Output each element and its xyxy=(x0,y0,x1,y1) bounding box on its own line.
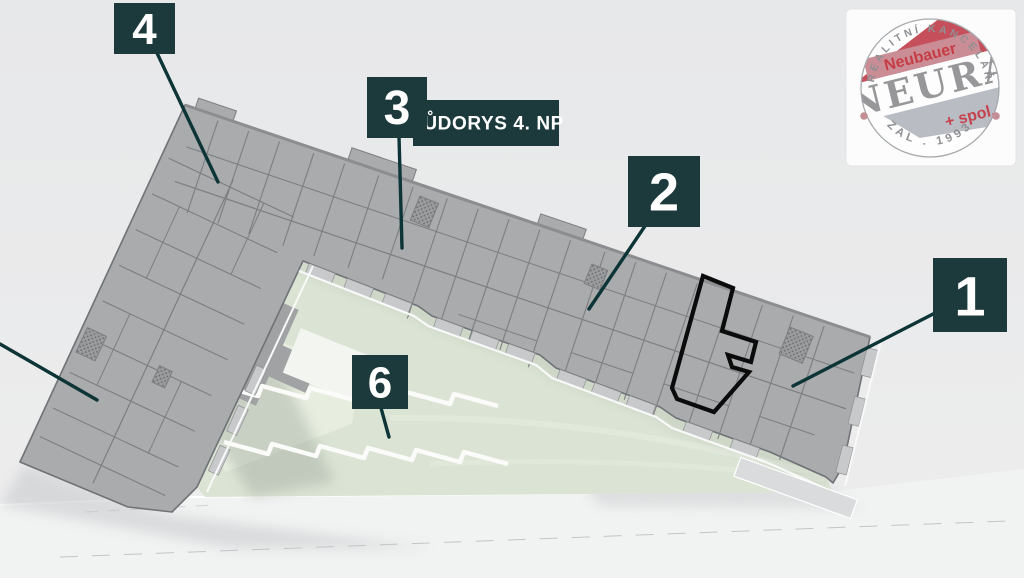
marker-6-number: 6 xyxy=(368,359,392,408)
marker-2: 2 xyxy=(628,156,700,227)
agency-logo: Neubauer NEURA + spol. REALITNÍ KANCELÁŘ… xyxy=(829,0,1024,166)
plan-title: PŮDORYS 4. NP xyxy=(410,112,564,135)
marker-3: 3 xyxy=(367,77,427,138)
marker-2-number: 2 xyxy=(649,163,679,223)
plan-title-plaque: PŮDORYS 4. NP xyxy=(410,100,564,146)
marker-3-number: 3 xyxy=(384,82,411,135)
marker-1: 1 xyxy=(933,258,1007,332)
logo-dot-left xyxy=(860,112,868,120)
marker-1-number: 1 xyxy=(954,265,985,328)
marker-4: 4 xyxy=(114,3,175,54)
plan-scene: PŮDORYS 4. NP 4 3 2 1 6 xyxy=(0,0,1024,578)
marker-4-number: 4 xyxy=(132,5,157,54)
logo-dot-right xyxy=(992,112,1000,120)
marker-6: 6 xyxy=(352,355,408,409)
floorplan-image: PŮDORYS 4. NP 4 3 2 1 6 xyxy=(0,0,1024,578)
